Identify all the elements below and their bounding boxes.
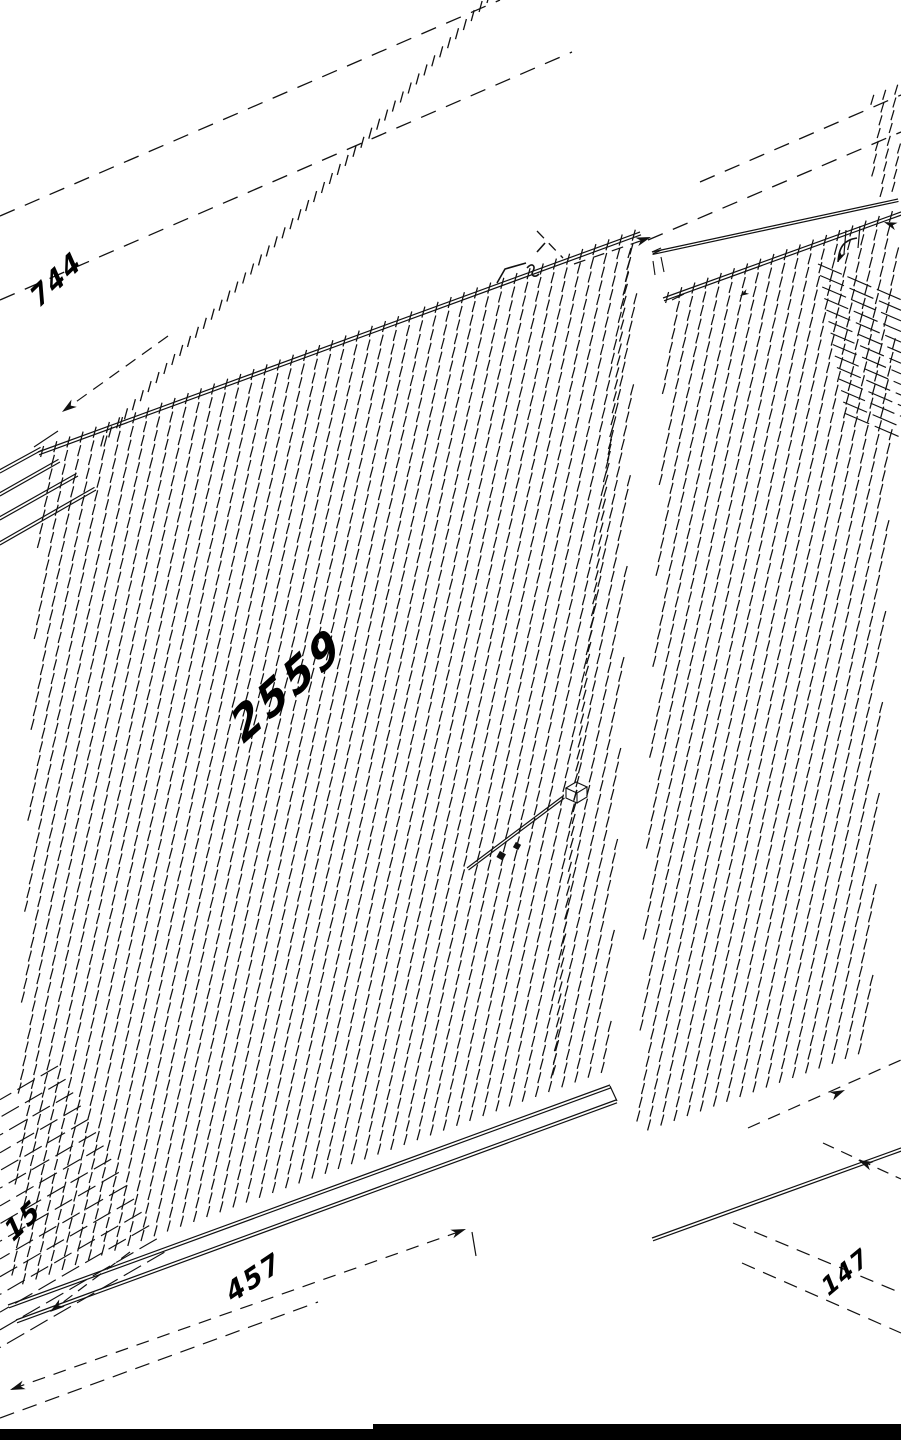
hidden-tick-lines — [101, 0, 631, 1075]
hook-symbols — [497, 218, 898, 298]
right-panel-face — [637, 85, 901, 1241]
left-panel-face — [0, 230, 641, 1418]
footer-bar — [0, 1424, 901, 1440]
isometric-panel-drawing: 744 2559 15 457 147 — [0, 0, 901, 1440]
dimension-lines — [8, 233, 901, 1394]
drawing-canvas — [0, 0, 901, 1440]
hidden-edge-dashed-lines — [0, 0, 901, 300]
